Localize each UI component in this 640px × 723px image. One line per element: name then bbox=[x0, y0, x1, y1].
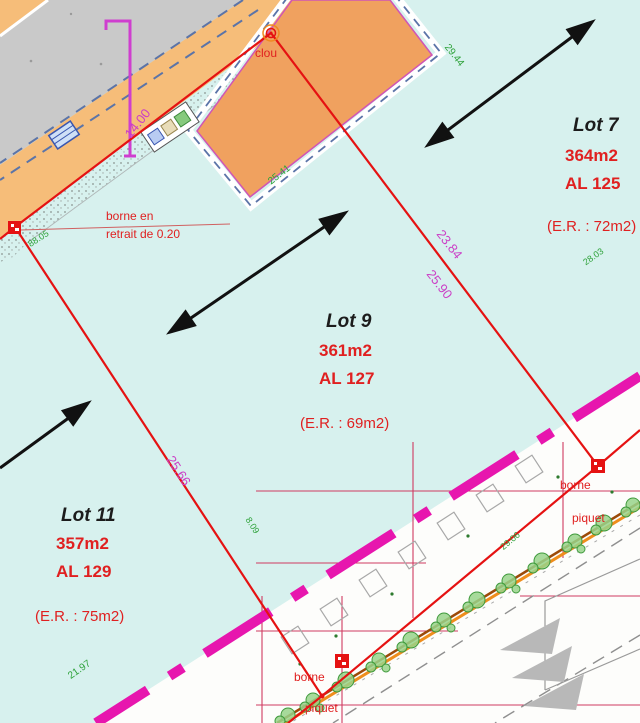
lot9-area: 361m2 bbox=[319, 341, 372, 360]
lot11-er: (E.R. : 75m2) bbox=[35, 608, 124, 625]
lot7-area: 364m2 bbox=[565, 146, 618, 165]
lot7-title: Lot 7 bbox=[573, 115, 620, 136]
borne-note-line2: retrait de 0.20 bbox=[106, 227, 180, 241]
lot11-title: Lot 11 bbox=[61, 505, 116, 526]
piquet-top-label: piquet bbox=[572, 511, 605, 525]
lot7-al: AL 125 bbox=[565, 174, 620, 193]
borne-marker-east bbox=[591, 459, 605, 473]
lot7-er: (E.R. : 72m2) bbox=[547, 218, 636, 235]
lot9-title: Lot 9 bbox=[326, 311, 372, 332]
lot11-area: 357m2 bbox=[56, 534, 109, 553]
piquet-bottom-label: piquet bbox=[305, 701, 338, 715]
borne-note-line1: borne en bbox=[106, 209, 153, 223]
lot9-al: AL 127 bbox=[319, 369, 374, 388]
borne-top-label: borne bbox=[560, 478, 591, 492]
piquet-point bbox=[320, 694, 325, 699]
clou-label: clou bbox=[255, 46, 277, 60]
lot9-er: (E.R. : 69m2) bbox=[300, 415, 389, 432]
borne-bottom-label: borne bbox=[294, 670, 325, 684]
borne-marker-south bbox=[335, 654, 349, 668]
site-plan: Lot 7 364m2 AL 125 (E.R. : 72m2) Lot 9 3… bbox=[0, 0, 640, 723]
borne-marker-nw bbox=[8, 221, 21, 234]
lot11-al: AL 129 bbox=[56, 562, 111, 581]
